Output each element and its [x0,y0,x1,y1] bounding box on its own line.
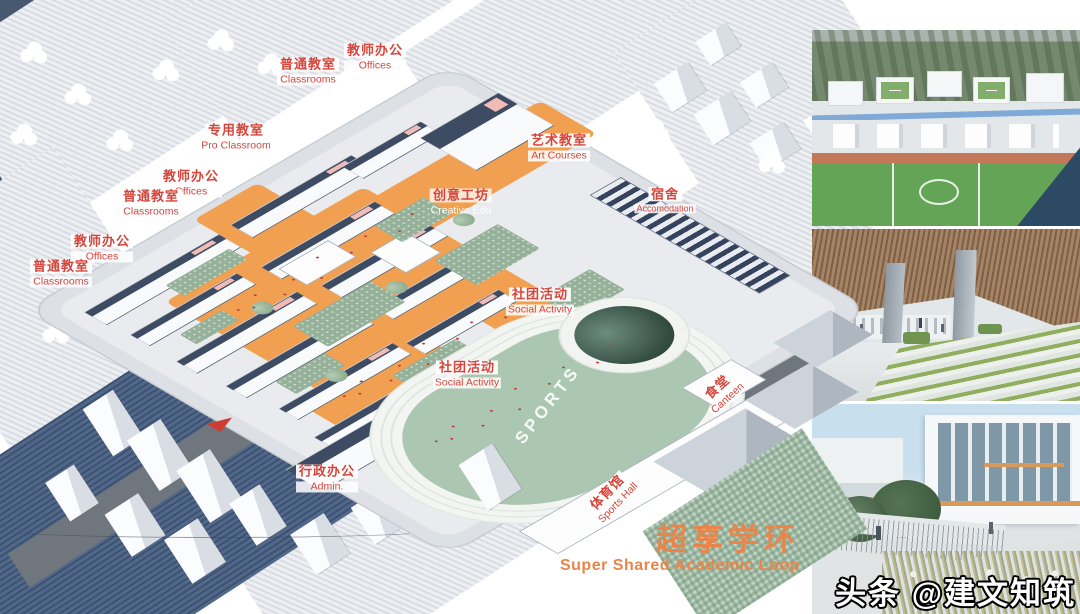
label-en: Classrooms [277,74,339,85]
label-offices: 教师办公 Offices [344,42,406,71]
photo-person [989,522,993,534]
label-zh: 艺术教室 [528,133,590,147]
tree-icon [640,118,670,144]
photo-field-line [892,163,894,226]
label-classrooms: 普通教室 Classrooms [120,188,182,217]
label-zh: 普通教室 [30,259,92,273]
label-classrooms: 普通教室 Classrooms [277,56,339,85]
label-en: Classrooms [120,206,182,217]
label-zh: 普通教室 [120,189,182,203]
label-en: Accomodation [634,204,695,214]
label-zh: 普通教室 [277,57,339,71]
label-art-courses: 艺术教室 Art Courses [528,132,590,161]
label-en: Classrooms [30,276,92,287]
photo-column [952,250,977,350]
photo-planter [903,332,930,344]
label-classrooms: 普通教室 Classrooms [30,258,92,287]
photo-track-strip [812,153,1080,163]
photo-orange-soffit [984,463,1064,467]
label-creative-workshop: 创意工坊 Creative Edu [429,187,494,216]
label-en: Social Activity [433,377,501,388]
label-zh: 教师办公 [344,43,406,57]
label-dormitory: 宿舍 Accomodation [634,186,695,213]
label-zh: 宿舍 [648,187,682,201]
masterplan-page: SPORTS 教师办公 Offices 普通教室 Classrooms 专用教室… [0,0,1080,614]
label-zh: 社团活动 [509,287,571,301]
photo-green-roof [876,77,914,104]
photo-person [919,318,922,328]
label-zh: 行政办公 [296,464,358,478]
photo-roof [1026,73,1064,102]
plan-title-en: Super Shared Academic Loop [560,558,800,575]
photo-person [941,324,944,332]
label-zh: 社团活动 [436,360,498,374]
label-en: Admin. [296,481,358,492]
photo-field-circle [919,179,959,205]
photo-person [876,526,881,540]
photo-concourse-blocks [833,124,1058,148]
plan-title: 超享学环 Super Shared Academic Loop [560,524,800,574]
watermark-text: 头条 @建文知筑 [835,568,1076,613]
photo-orange-soffit [925,501,1080,506]
label-admin: 行政办公 Admin. [296,463,358,492]
label-en: Creative Edu [429,205,494,216]
label-social-activity: 社团活动 Social Activity [433,359,501,388]
tree-icon [62,82,92,108]
photo-field-line [978,163,980,226]
label-zh: 教师办公 [160,169,222,183]
label-en: Pro Classroom [199,140,272,151]
label-zh: 教师办公 [71,234,133,248]
label-en: Offices [344,60,406,71]
plan-title-zh: 超享学环 [560,524,800,557]
photo-roof [828,81,863,106]
photo-planter [978,324,1002,334]
label-zh: 专用教室 [205,123,267,137]
label-pro-classroom: 专用教室 Pro Classroom [199,122,272,151]
tree-icon [150,58,180,84]
photo-roof [927,71,962,96]
photo-green-roof [973,77,1011,104]
aerial-campus-photo [812,30,1080,226]
tree-icon [756,150,786,176]
label-en: Social Activity [506,304,574,315]
label-en: Art Courses [528,150,590,161]
tree-icon [205,28,235,54]
tree-icon [104,128,134,154]
label-zh: 创意工坊 [430,188,492,202]
label-social-activity: 社团活动 Social Activity [506,286,574,315]
tree-icon [18,40,48,66]
tree-icon [8,122,38,148]
